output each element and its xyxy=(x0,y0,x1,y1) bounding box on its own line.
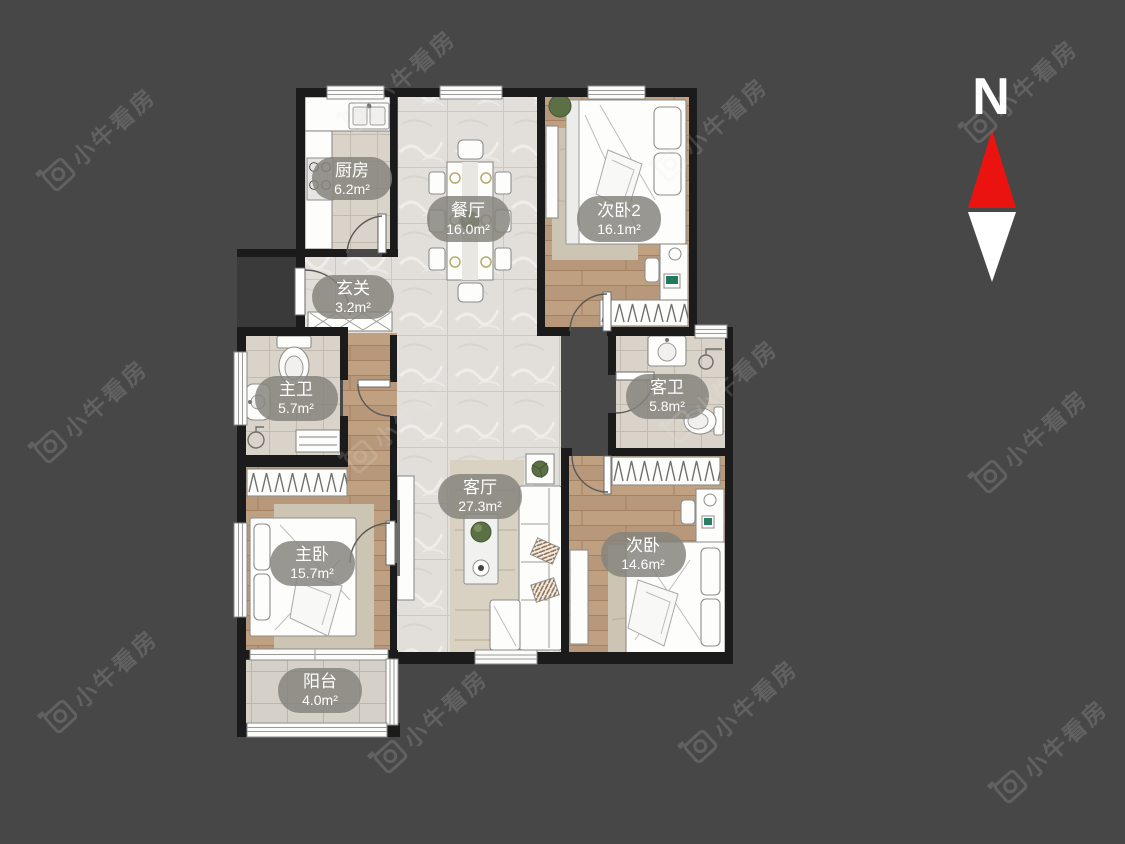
bedroom2-plant-icon xyxy=(549,95,571,117)
svg-text:次卧2: 次卧2 xyxy=(597,201,640,220)
room-label-entry: 玄关 3.2m² xyxy=(312,275,394,319)
north-compass: N xyxy=(968,68,1016,282)
svg-text:15.7m²: 15.7m² xyxy=(290,565,334,581)
svg-text:3.2m²: 3.2m² xyxy=(335,299,371,315)
master-bath-window xyxy=(234,352,247,425)
living-room-window xyxy=(475,650,537,664)
room-label-bedroom2: 次卧2 16.1m² xyxy=(577,196,661,242)
room-label-living: 客厅 27.3m² xyxy=(438,474,522,519)
room-label-balcony: 阳台 4.0m² xyxy=(278,668,362,713)
master-wardrobe xyxy=(247,469,347,496)
svg-text:客卫: 客卫 xyxy=(650,378,684,397)
master-bedroom-window xyxy=(234,523,247,617)
room-label-guest-bath: 客卫 5.8m² xyxy=(626,374,709,419)
bedroom2-wardrobe xyxy=(600,300,688,326)
svg-text:阳台: 阳台 xyxy=(303,672,337,691)
svg-text:5.7m²: 5.7m² xyxy=(278,400,314,416)
floorplan-canvas: 厨房 6.2m² 餐厅 16.0m² 次卧2 16.1m² 玄关 3.2m² 主… xyxy=(0,0,1125,844)
svg-text:客厅: 客厅 xyxy=(463,478,497,497)
bedroom2-window xyxy=(588,86,645,99)
room-label-master-bath: 主卫 5.7m² xyxy=(255,376,338,421)
svg-text:玄关: 玄关 xyxy=(336,279,370,298)
guest-sink-icon xyxy=(648,336,686,366)
hallway-floor xyxy=(343,333,397,470)
svg-text:4.0m²: 4.0m² xyxy=(302,692,338,708)
dining-window xyxy=(440,86,502,99)
coffee-table xyxy=(464,514,498,584)
balcony-bottom-window xyxy=(247,723,387,737)
svg-text:餐厅: 餐厅 xyxy=(451,201,485,220)
kitchen-sink xyxy=(349,103,389,129)
svg-text:次卧: 次卧 xyxy=(626,536,660,555)
compass-n-label: N xyxy=(972,68,1010,126)
svg-text:14.6m²: 14.6m² xyxy=(621,556,665,572)
balcony-right-window xyxy=(386,659,398,725)
guest-bath-window xyxy=(695,325,727,338)
svg-text:6.2m²: 6.2m² xyxy=(334,181,370,197)
svg-text:5.8m²: 5.8m² xyxy=(649,398,685,414)
second-bedroom-dresser xyxy=(570,550,588,644)
svg-text:27.3m²: 27.3m² xyxy=(458,498,502,514)
bedroom2-shelf xyxy=(546,126,558,218)
second-bedroom-wardrobe xyxy=(612,457,720,485)
kitchen-window xyxy=(327,86,384,99)
svg-text:主卫: 主卫 xyxy=(279,380,313,399)
svg-text:16.1m²: 16.1m² xyxy=(597,221,641,237)
svg-text:厨房: 厨房 xyxy=(335,161,369,180)
svg-text:主卧: 主卧 xyxy=(295,545,329,564)
svg-text:16.0m²: 16.0m² xyxy=(446,221,490,237)
tv-cabinet xyxy=(395,476,414,600)
exterior-notch xyxy=(237,253,299,335)
side-table-plant xyxy=(526,454,554,484)
balcony-slider-window xyxy=(250,649,388,660)
room-label-dining: 餐厅 16.0m² xyxy=(427,196,510,242)
room-label-master-bedroom: 主卧 15.7m² xyxy=(270,541,355,586)
north-arrow-icon xyxy=(968,130,1016,208)
room-label-second-bedroom: 次卧 14.6m² xyxy=(601,532,686,577)
room-label-kitchen: 厨房 6.2m² xyxy=(312,157,392,200)
south-arrow-icon xyxy=(968,212,1016,282)
floorplan-drawing: 厨房 6.2m² 餐厅 16.0m² 次卧2 16.1m² 玄关 3.2m² 主… xyxy=(0,0,1125,844)
